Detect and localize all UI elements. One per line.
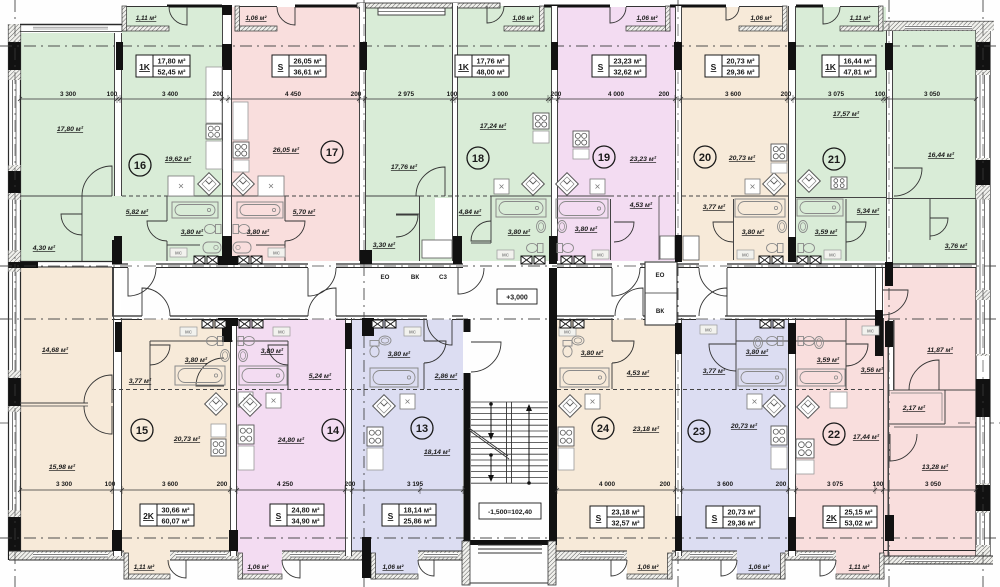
svg-text:17,24 м²: 17,24 м² — [480, 123, 507, 130]
svg-text:17: 17 — [326, 147, 338, 159]
svg-text:3,30 м²: 3,30 м² — [373, 242, 396, 249]
svg-text:24,80 м²: 24,80 м² — [277, 437, 305, 444]
svg-text:200: 200 — [351, 91, 362, 98]
svg-text:3,59 м²: 3,59 м² — [817, 357, 840, 364]
svg-text:22: 22 — [828, 429, 840, 441]
svg-text:3,77 м²: 3,77 м² — [129, 378, 152, 385]
svg-text:3,76 м²: 3,76 м² — [945, 243, 968, 250]
svg-text:200: 200 — [345, 481, 356, 488]
svg-text:S: S — [711, 62, 717, 72]
svg-text:МС: МС — [705, 328, 713, 333]
svg-text:4,53 м²: 4,53 м² — [626, 370, 650, 377]
svg-text:48,00 м²: 48,00 м² — [476, 68, 505, 77]
svg-text:ВК: ВК — [656, 308, 664, 315]
svg-text:16: 16 — [134, 160, 146, 172]
svg-text:13,28 м²: 13,28 м² — [922, 464, 949, 471]
svg-text:29,36 м²: 29,36 м² — [727, 519, 756, 528]
svg-text:3,80 м²: 3,80 м² — [261, 348, 284, 355]
svg-text:С3: С3 — [439, 274, 447, 281]
svg-text:17,80 м²: 17,80 м² — [57, 126, 84, 133]
svg-text:20,73 м²: 20,73 м² — [730, 423, 758, 430]
svg-text:3 195: 3 195 — [407, 481, 423, 488]
svg-text:3,80 м²: 3,80 м² — [185, 357, 208, 364]
svg-text:1,11 м²: 1,11 м² — [136, 15, 157, 22]
svg-text:3,80 м²: 3,80 м² — [181, 229, 204, 236]
svg-text:3,80 м²: 3,80 м² — [575, 226, 598, 233]
svg-text:32,62 м²: 32,62 м² — [613, 68, 642, 77]
svg-text:1,11 м²: 1,11 м² — [849, 564, 870, 571]
svg-text:3,77 м²: 3,77 м² — [703, 368, 726, 375]
svg-text:ЕО: ЕО — [656, 272, 665, 279]
svg-text:20: 20 — [699, 152, 711, 164]
svg-text:30,66 м²: 30,66 м² — [161, 506, 190, 515]
svg-text:S: S — [278, 62, 284, 72]
svg-text:1,06 м²: 1,06 м² — [382, 564, 404, 571]
svg-text:200: 200 — [213, 91, 224, 98]
svg-text:17,44 м²: 17,44 м² — [853, 434, 880, 441]
svg-text:19,62 м²: 19,62 м² — [165, 156, 192, 163]
svg-text:1K: 1K — [825, 62, 837, 72]
svg-text:МС: МС — [502, 253, 510, 258]
svg-text:3,80 м²: 3,80 м² — [247, 229, 270, 236]
svg-text:100: 100 — [875, 91, 886, 98]
svg-text:1,06 м²: 1,06 м² — [750, 15, 772, 22]
svg-text:4 450: 4 450 — [285, 91, 301, 98]
svg-text:25,15 м²: 25,15 м² — [844, 508, 873, 517]
svg-text:3,59 м²: 3,59 м² — [815, 229, 838, 236]
svg-text:5,24 м²: 5,24 м² — [309, 373, 332, 380]
svg-text:16,44 м²: 16,44 м² — [843, 57, 872, 66]
svg-text:60,07 м²: 60,07 м² — [161, 517, 190, 526]
svg-text:20,73 м²: 20,73 м² — [173, 436, 201, 443]
svg-text:17,76 м²: 17,76 м² — [476, 57, 505, 66]
svg-text:23,18 м²: 23,18 м² — [632, 426, 660, 433]
svg-text:17,57 м²: 17,57 м² — [833, 111, 860, 118]
svg-text:3,80 м²: 3,80 м² — [746, 349, 769, 356]
svg-text:47,81 м²: 47,81 м² — [843, 68, 872, 77]
svg-text:МС: МС — [273, 251, 281, 256]
svg-text:3,80 м²: 3,80 м² — [742, 229, 765, 236]
svg-text:3 050: 3 050 — [925, 481, 941, 488]
svg-text:2K: 2K — [143, 511, 155, 521]
svg-text:МС: МС — [185, 330, 193, 335]
svg-text:МС: МС — [409, 330, 417, 335]
svg-text:53,02 м²: 53,02 м² — [844, 519, 873, 528]
svg-text:200: 200 — [776, 481, 787, 488]
svg-text:3 050: 3 050 — [924, 91, 940, 98]
svg-text:1,11 м²: 1,11 м² — [134, 564, 155, 571]
svg-text:24,80 м²: 24,80 м² — [291, 506, 320, 515]
svg-text:23,23 м²: 23,23 м² — [629, 156, 657, 163]
svg-text:100: 100 — [105, 481, 116, 488]
svg-text:2 975: 2 975 — [398, 91, 414, 98]
svg-text:4,30 м²: 4,30 м² — [32, 245, 56, 252]
svg-text:26,05 м²: 26,05 м² — [293, 57, 322, 66]
svg-text:1,06 м²: 1,06 м² — [637, 564, 659, 571]
svg-text:МС: МС — [564, 330, 572, 335]
svg-text:200: 200 — [659, 91, 670, 98]
svg-text:1,06 м²: 1,06 м² — [512, 15, 534, 22]
svg-text:1,06 м²: 1,06 м² — [247, 564, 269, 571]
svg-text:3,56 м²: 3,56 м² — [861, 367, 884, 374]
svg-text:4 000: 4 000 — [599, 481, 615, 488]
svg-text:1,06 м²: 1,06 м² — [245, 15, 267, 22]
svg-text:200: 200 — [551, 91, 562, 98]
svg-text:3 300: 3 300 — [56, 481, 72, 488]
svg-text:23,18 м²: 23,18 м² — [611, 508, 640, 517]
svg-text:4,84 м²: 4,84 м² — [458, 209, 482, 216]
svg-text:МС: МС — [597, 253, 605, 258]
svg-text:5,34 м²: 5,34 м² — [857, 208, 880, 215]
svg-text:34,90 м²: 34,90 м² — [291, 517, 320, 526]
svg-text:S: S — [598, 62, 604, 72]
svg-text:3 300: 3 300 — [60, 91, 76, 98]
svg-text:18,14 м²: 18,14 м² — [403, 506, 432, 515]
svg-text:20,73 м²: 20,73 м² — [726, 57, 755, 66]
svg-text:16,44 м²: 16,44 м² — [928, 152, 955, 159]
svg-text:МС: МС — [175, 251, 183, 256]
svg-text:100: 100 — [873, 481, 884, 488]
svg-text:100: 100 — [447, 91, 458, 98]
svg-text:S: S — [276, 511, 282, 521]
svg-text:14: 14 — [327, 425, 340, 437]
svg-text:2,17 м²: 2,17 м² — [902, 405, 926, 412]
svg-text:+3,000: +3,000 — [506, 295, 528, 302]
svg-text:15,98 м²: 15,98 м² — [49, 464, 76, 471]
svg-text:МС: МС — [829, 253, 837, 258]
svg-text:2K: 2K — [826, 513, 838, 523]
svg-text:2,86 м²: 2,86 м² — [434, 373, 458, 380]
svg-text:23: 23 — [693, 426, 705, 438]
svg-text:5,70 м²: 5,70 м² — [293, 209, 316, 216]
svg-text:14,68 м²: 14,68 м² — [42, 347, 69, 354]
svg-text:11,87 м²: 11,87 м² — [927, 347, 953, 354]
svg-text:4,53 м²: 4,53 м² — [629, 202, 653, 209]
svg-text:3 600: 3 600 — [162, 481, 178, 488]
svg-text:S: S — [596, 513, 602, 523]
svg-text:3 000: 3 000 — [492, 91, 508, 98]
svg-text:200: 200 — [781, 91, 792, 98]
svg-text:ВК: ВК — [411, 274, 419, 281]
svg-text:200: 200 — [217, 481, 228, 488]
svg-text:4 250: 4 250 — [277, 481, 293, 488]
svg-text:24: 24 — [597, 423, 610, 435]
svg-text:5,82 м²: 5,82 м² — [126, 209, 149, 216]
svg-text:4 000: 4 000 — [608, 91, 624, 98]
svg-text:26,05 м²: 26,05 м² — [272, 147, 300, 154]
svg-text:МС: МС — [278, 330, 286, 335]
svg-text:20,73 м²: 20,73 м² — [727, 508, 756, 517]
svg-text:3,80 м²: 3,80 м² — [581, 350, 604, 357]
svg-text:S: S — [388, 511, 394, 521]
svg-text:3 600: 3 600 — [725, 91, 741, 98]
svg-text:1K: 1K — [139, 62, 151, 72]
svg-text:52,45 м²: 52,45 м² — [157, 68, 186, 77]
svg-text:3 075: 3 075 — [827, 481, 843, 488]
svg-text:3 400: 3 400 — [162, 91, 178, 98]
svg-text:S: S — [712, 513, 718, 523]
svg-text:1,06 м²: 1,06 м² — [748, 564, 770, 571]
svg-text:100: 100 — [107, 91, 118, 98]
svg-text:ЕО: ЕО — [381, 274, 390, 281]
svg-text:1,06 м²: 1,06 м² — [636, 15, 658, 22]
svg-text:3 600: 3 600 — [717, 481, 733, 488]
svg-text:19: 19 — [598, 152, 610, 164]
svg-text:17,80 м²: 17,80 м² — [157, 57, 186, 66]
svg-text:МС: МС — [742, 253, 750, 258]
svg-text:1,11 м²: 1,11 м² — [850, 15, 871, 22]
svg-text:20,73 м²: 20,73 м² — [728, 155, 756, 162]
svg-text:3,77 м²: 3,77 м² — [703, 204, 726, 211]
svg-text:18,14 м²: 18,14 м² — [424, 449, 451, 456]
svg-text:29,36 м²: 29,36 м² — [726, 68, 755, 77]
svg-text:25,86 м²: 25,86 м² — [403, 517, 432, 526]
svg-text:3,80 м²: 3,80 м² — [508, 229, 531, 236]
svg-text:1K: 1K — [458, 62, 470, 72]
svg-text:15: 15 — [136, 425, 148, 437]
svg-text:13: 13 — [416, 423, 428, 435]
svg-text:18: 18 — [472, 153, 484, 165]
svg-text:3,80 м²: 3,80 м² — [388, 351, 411, 358]
svg-text:-1,500=102,40: -1,500=102,40 — [488, 509, 532, 516]
svg-text:23,23 м²: 23,23 м² — [613, 57, 642, 66]
svg-text:21: 21 — [828, 154, 840, 166]
svg-text:17,76 м²: 17,76 м² — [391, 164, 418, 171]
svg-text:32,57 м²: 32,57 м² — [611, 519, 640, 528]
svg-text:36,61 м²: 36,61 м² — [293, 68, 322, 77]
svg-text:200: 200 — [660, 481, 671, 488]
svg-text:МС: МС — [867, 329, 875, 334]
svg-text:3 075: 3 075 — [828, 91, 844, 98]
